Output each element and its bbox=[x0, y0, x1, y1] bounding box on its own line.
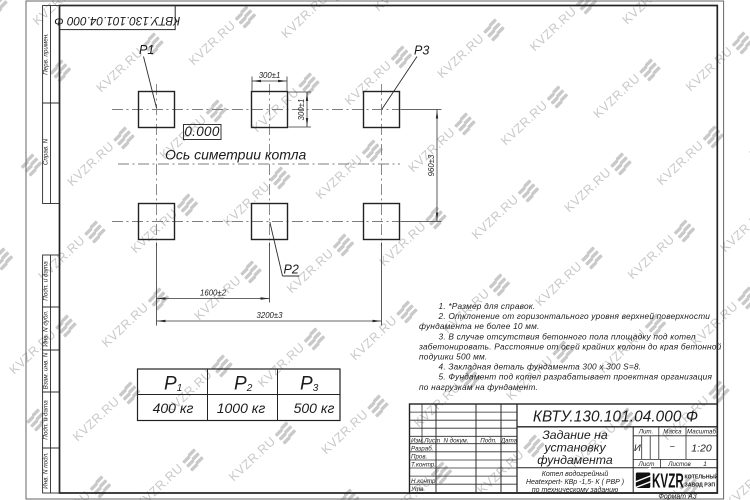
svg-text:Подп. и дата: Подп. и дата bbox=[42, 400, 50, 440]
svg-text:Справ. N: Справ. N bbox=[43, 138, 50, 165]
svg-text:КВТУ.130.101.04.000 Ф: КВТУ.130.101.04.000 Ф bbox=[533, 409, 698, 426]
svg-text:Н.контр.: Н.контр. bbox=[411, 478, 437, 485]
svg-text:0.000: 0.000 bbox=[184, 124, 219, 139]
svg-text:3200±3: 3200±3 bbox=[257, 311, 284, 320]
svg-text:3. В случае отсутствия бетонн: 3. В случае отсутствия бетонного пола пл… bbox=[439, 331, 696, 341]
svg-text:P2: P2 bbox=[284, 263, 299, 277]
svg-text:1000 кг: 1000 кг bbox=[217, 400, 266, 416]
svg-text:фундамента не более 10 мм.: фундамента не более 10 мм. bbox=[419, 321, 539, 331]
svg-text:P1: P1 bbox=[139, 43, 154, 57]
svg-text:Лист: Лист bbox=[638, 461, 655, 468]
svg-text:по нагрузкам на фундамент.: по нагрузкам на фундамент. bbox=[419, 382, 538, 392]
svg-text:960±3: 960±3 bbox=[427, 154, 436, 176]
svg-text:Дата: Дата bbox=[500, 437, 518, 444]
svg-text:Формат А3: Формат А3 bbox=[658, 494, 696, 500]
svg-text:Ось симетрии котла: Ось симетрии котла bbox=[165, 147, 307, 163]
svg-text:фундамента: фундамента bbox=[537, 453, 613, 467]
svg-text:1:20: 1:20 bbox=[691, 443, 712, 455]
svg-text:ЗАВОД РЭП: ЗАВОД РЭП bbox=[685, 483, 716, 489]
svg-text:Утв.: Утв. bbox=[410, 486, 425, 493]
svg-text:1: 1 bbox=[703, 461, 707, 468]
svg-text:4. Закладная деталь фундамент: 4. Закладная деталь фундамента 300 x 300… bbox=[439, 362, 642, 372]
svg-text:забетонировать. Расстояние от: забетонировать. Расстояние от осей крайн… bbox=[418, 341, 722, 351]
svg-text:Котел водогрейный: Котел водогрейный bbox=[542, 470, 609, 478]
svg-text:KVZR: KVZR bbox=[652, 469, 684, 492]
svg-text:300±1: 300±1 bbox=[259, 71, 281, 80]
svg-text:5. Фундамент под котел разраб: 5. Фундамент под котел разрабатывает про… bbox=[439, 372, 713, 382]
svg-text:Перв. примен.: Перв. примен. bbox=[43, 33, 50, 75]
svg-text:Изм.Лист: Изм.Лист bbox=[411, 437, 440, 444]
svg-text:300±1: 300±1 bbox=[297, 99, 306, 121]
svg-text:400 кг: 400 кг bbox=[153, 400, 194, 416]
svg-text:Разраб.: Разраб. bbox=[411, 445, 433, 452]
svg-text:подушки 500 мм.: подушки 500 мм. bbox=[419, 352, 487, 362]
svg-text:по техническому заданию: по техническому заданию bbox=[532, 486, 619, 494]
svg-text:2. Отклонение от горизонтальн: 2. Отклонение от горизонтального уровня … bbox=[438, 311, 711, 321]
svg-text:500 кг: 500 кг bbox=[294, 400, 335, 416]
svg-text:Т.контр.: Т.контр. bbox=[411, 462, 436, 469]
svg-text:Взам. инв. N: Взам. инв. N bbox=[43, 352, 50, 389]
svg-text:Листов: Листов bbox=[667, 461, 691, 468]
svg-text:Инв. N подл.: Инв. N подл. bbox=[42, 452, 50, 489]
svg-text:Пров.: Пров. bbox=[411, 454, 427, 461]
svg-text:Инв. N дубл.: Инв. N дубл. bbox=[42, 310, 50, 346]
svg-text:Подп.: Подп. bbox=[480, 437, 496, 444]
svg-text:N докум.: N докум. bbox=[443, 437, 468, 444]
svg-text:Лит.: Лит. bbox=[638, 429, 654, 436]
svg-text:Масса: Масса bbox=[663, 429, 682, 436]
svg-text:1600±2: 1600±2 bbox=[200, 289, 227, 298]
svg-text:КВТУ.130.101.04.000 Ф: КВТУ.130.101.04.000 Ф bbox=[54, 14, 180, 28]
svg-text:Подп. и дата: Подп. и дата bbox=[42, 261, 50, 301]
svg-text:1. *Размер для справок.: 1. *Размер для справок. bbox=[439, 301, 536, 311]
svg-text:P3: P3 bbox=[414, 44, 429, 58]
svg-text:–: – bbox=[669, 442, 675, 451]
svg-text:Масштаб: Масштаб bbox=[687, 429, 716, 436]
svg-text:Heatexpert- КВр -1,5- К ( РВР: Heatexpert- КВр -1,5- К ( РВР ) bbox=[526, 479, 624, 486]
svg-text:И: И bbox=[634, 443, 641, 454]
svg-text:КОТЕЛЬНЫЙ: КОТЕЛЬНЫЙ bbox=[685, 473, 719, 481]
